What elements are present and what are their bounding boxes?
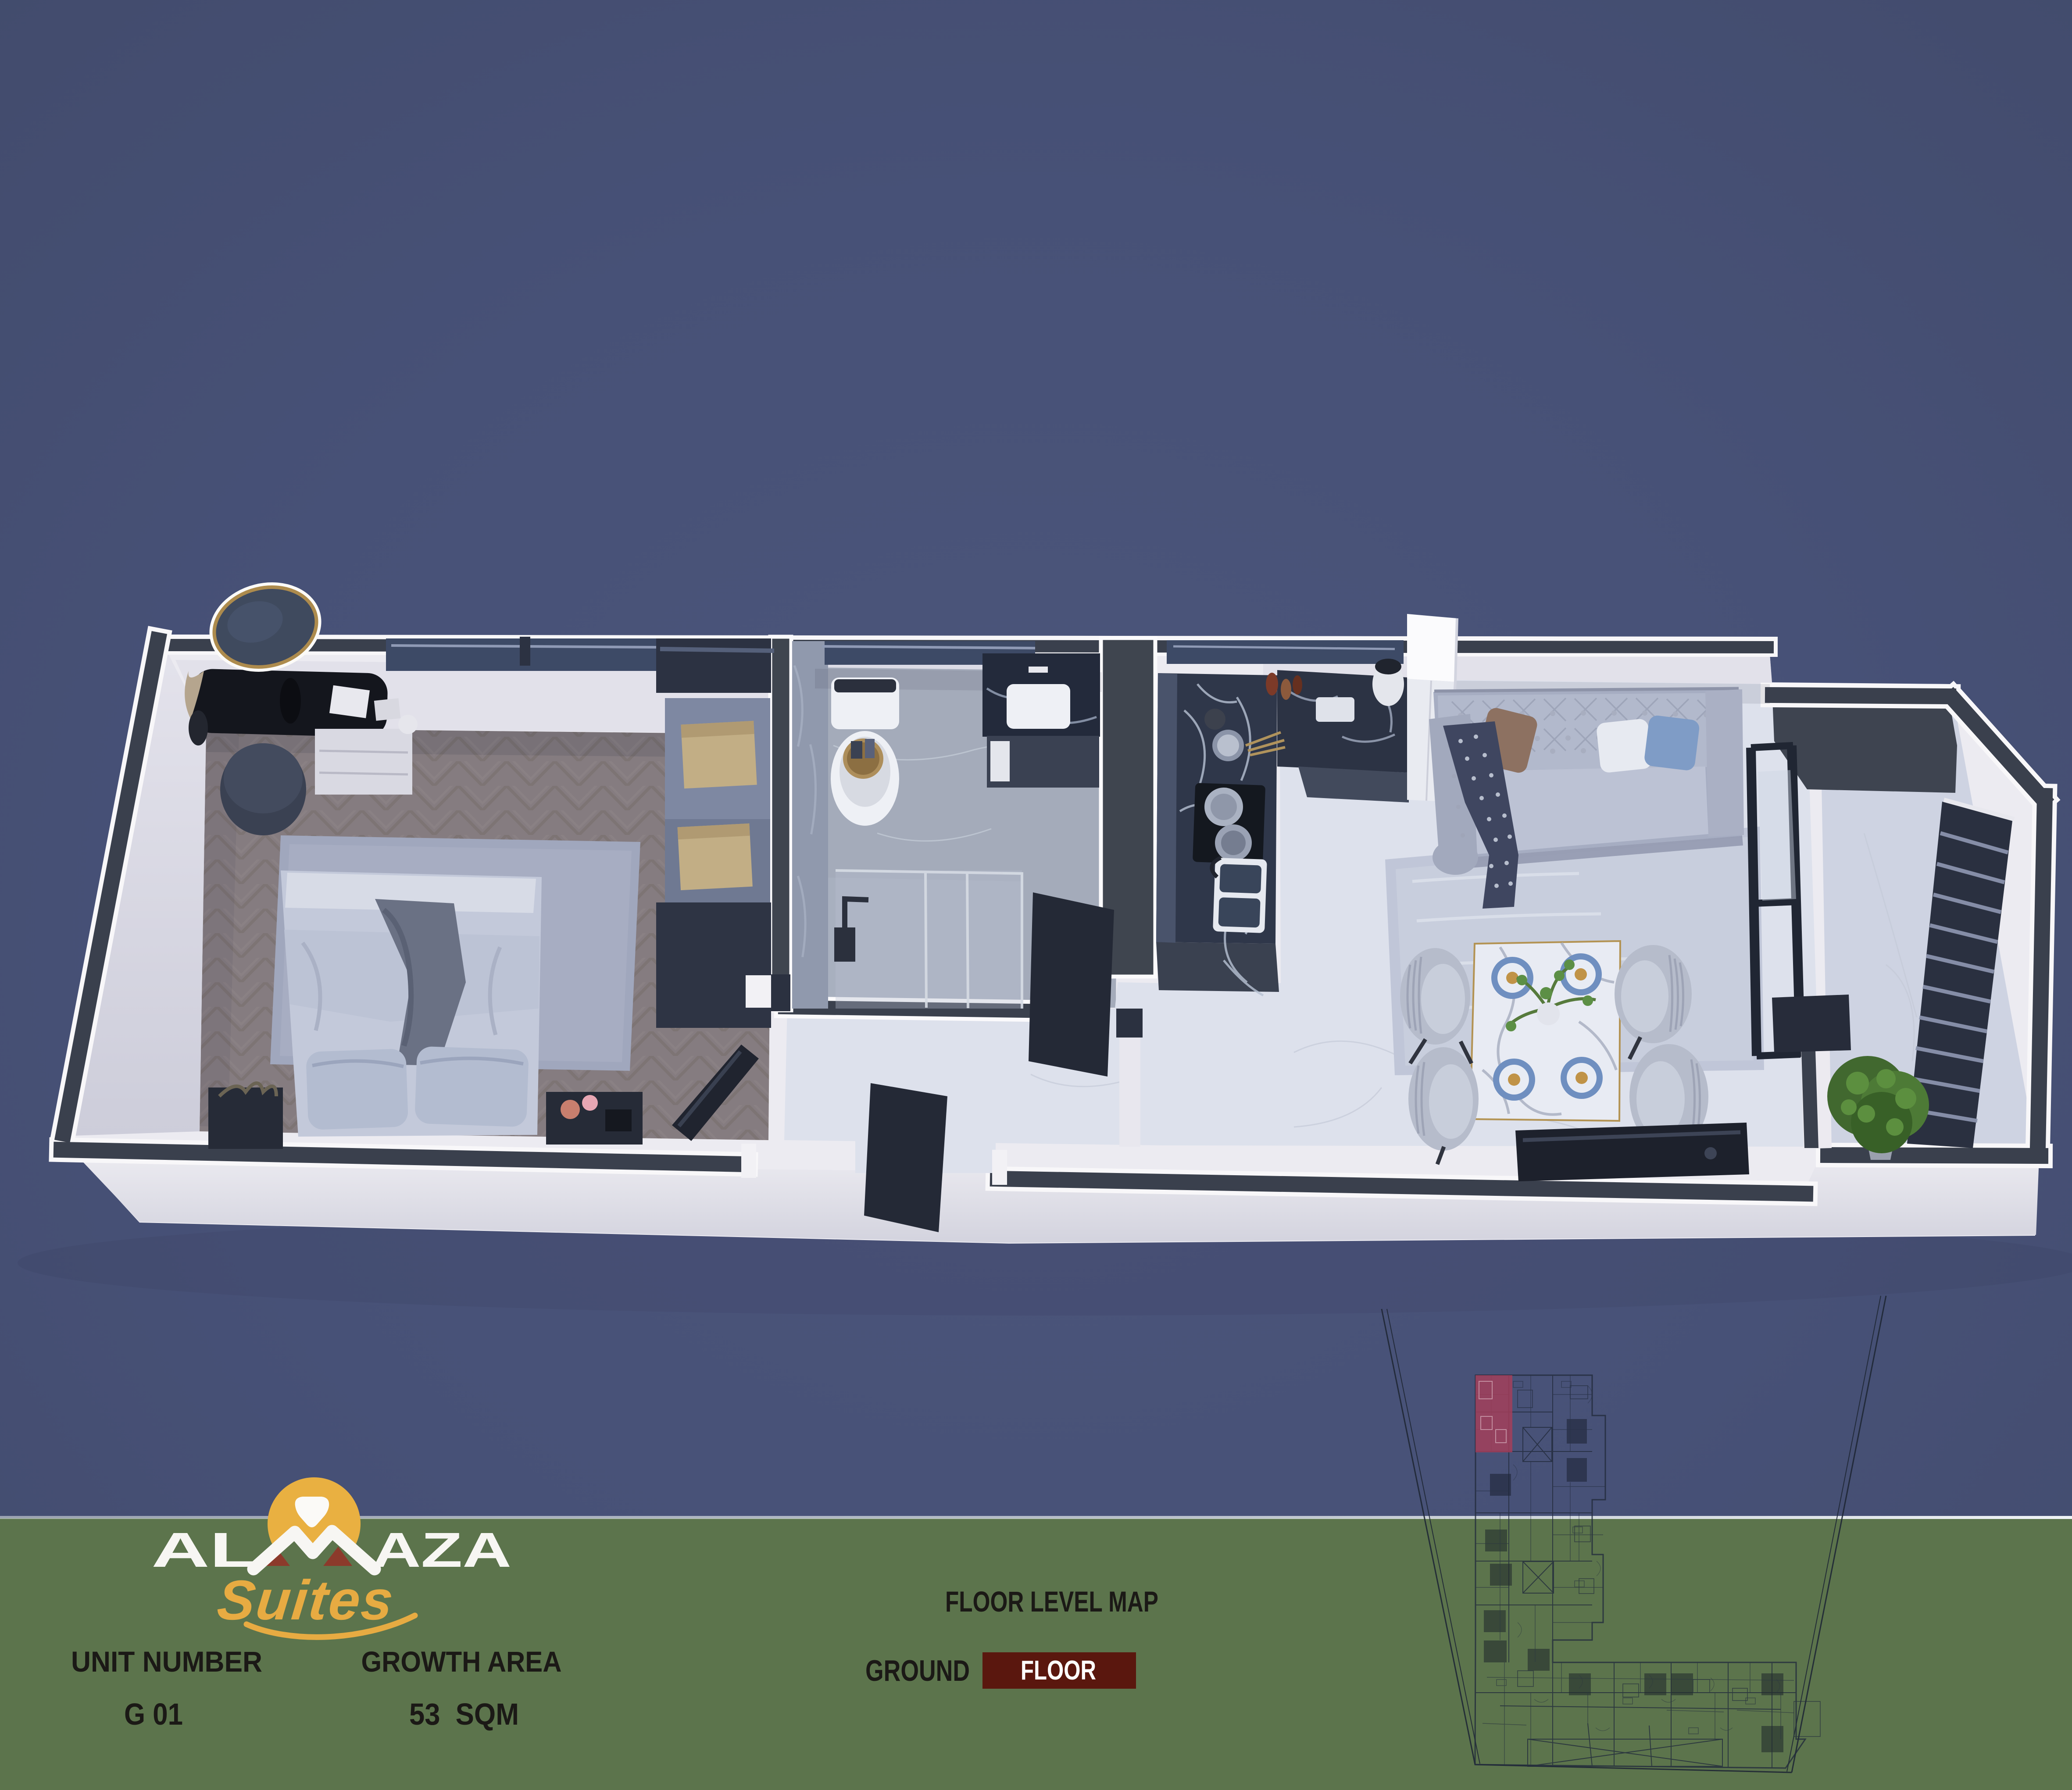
svg-text:GROWTH AREA: GROWTH AREA [361, 1645, 562, 1678]
svg-text:FLOOR LEVEL MAP: FLOOR LEVEL MAP [945, 1585, 1158, 1618]
svg-text:53 SQM: 53 SQM [409, 1697, 519, 1731]
svg-text:FLOOR: FLOOR [1021, 1655, 1096, 1686]
svg-text:GROUND: GROUND [865, 1654, 970, 1687]
svg-text:G 01: G 01 [124, 1697, 183, 1731]
svg-text:UNIT NUMBER: UNIT NUMBER [71, 1645, 262, 1678]
svg-text:Suites: Suites [214, 1569, 397, 1632]
